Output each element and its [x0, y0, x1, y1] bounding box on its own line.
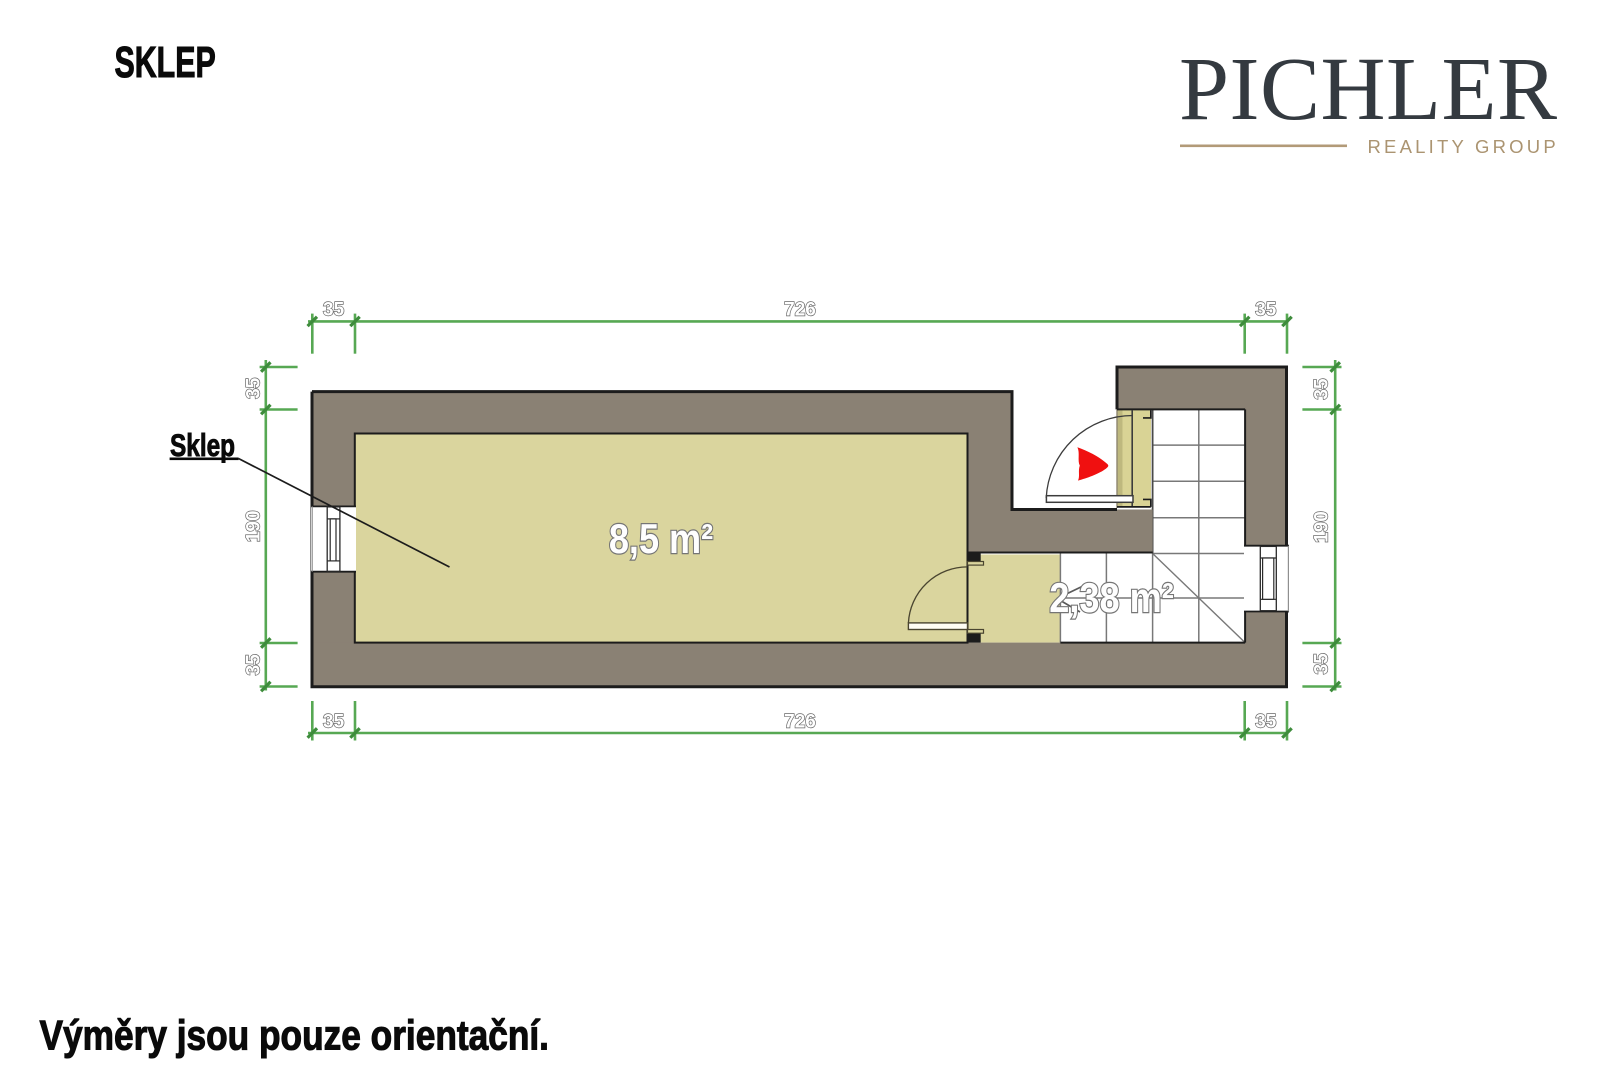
- svg-text:35: 35: [243, 377, 264, 399]
- svg-text:35: 35: [1255, 711, 1277, 732]
- svg-text:35: 35: [323, 711, 345, 732]
- svg-text:Výměry jsou pouze orientační.: Výměry jsou pouze orientační.: [40, 1013, 549, 1060]
- svg-text:190: 190: [243, 510, 264, 542]
- svg-text:REALITY GROUP: REALITY GROUP: [1368, 136, 1559, 157]
- svg-text:726: 726: [784, 299, 816, 320]
- svg-text:726: 726: [784, 711, 816, 732]
- svg-text:190: 190: [1312, 511, 1333, 543]
- svg-text:2,38 m²: 2,38 m²: [1049, 576, 1173, 622]
- svg-text:PICHLER: PICHLER: [1179, 40, 1558, 139]
- svg-text:35: 35: [243, 654, 264, 676]
- svg-text:35: 35: [1255, 299, 1277, 320]
- svg-text:8,5 m²: 8,5 m²: [609, 517, 713, 563]
- svg-text:35: 35: [323, 299, 345, 320]
- svg-text:35: 35: [1312, 653, 1333, 675]
- svg-text:SKLEP: SKLEP: [115, 39, 216, 88]
- svg-text:35: 35: [1312, 378, 1333, 400]
